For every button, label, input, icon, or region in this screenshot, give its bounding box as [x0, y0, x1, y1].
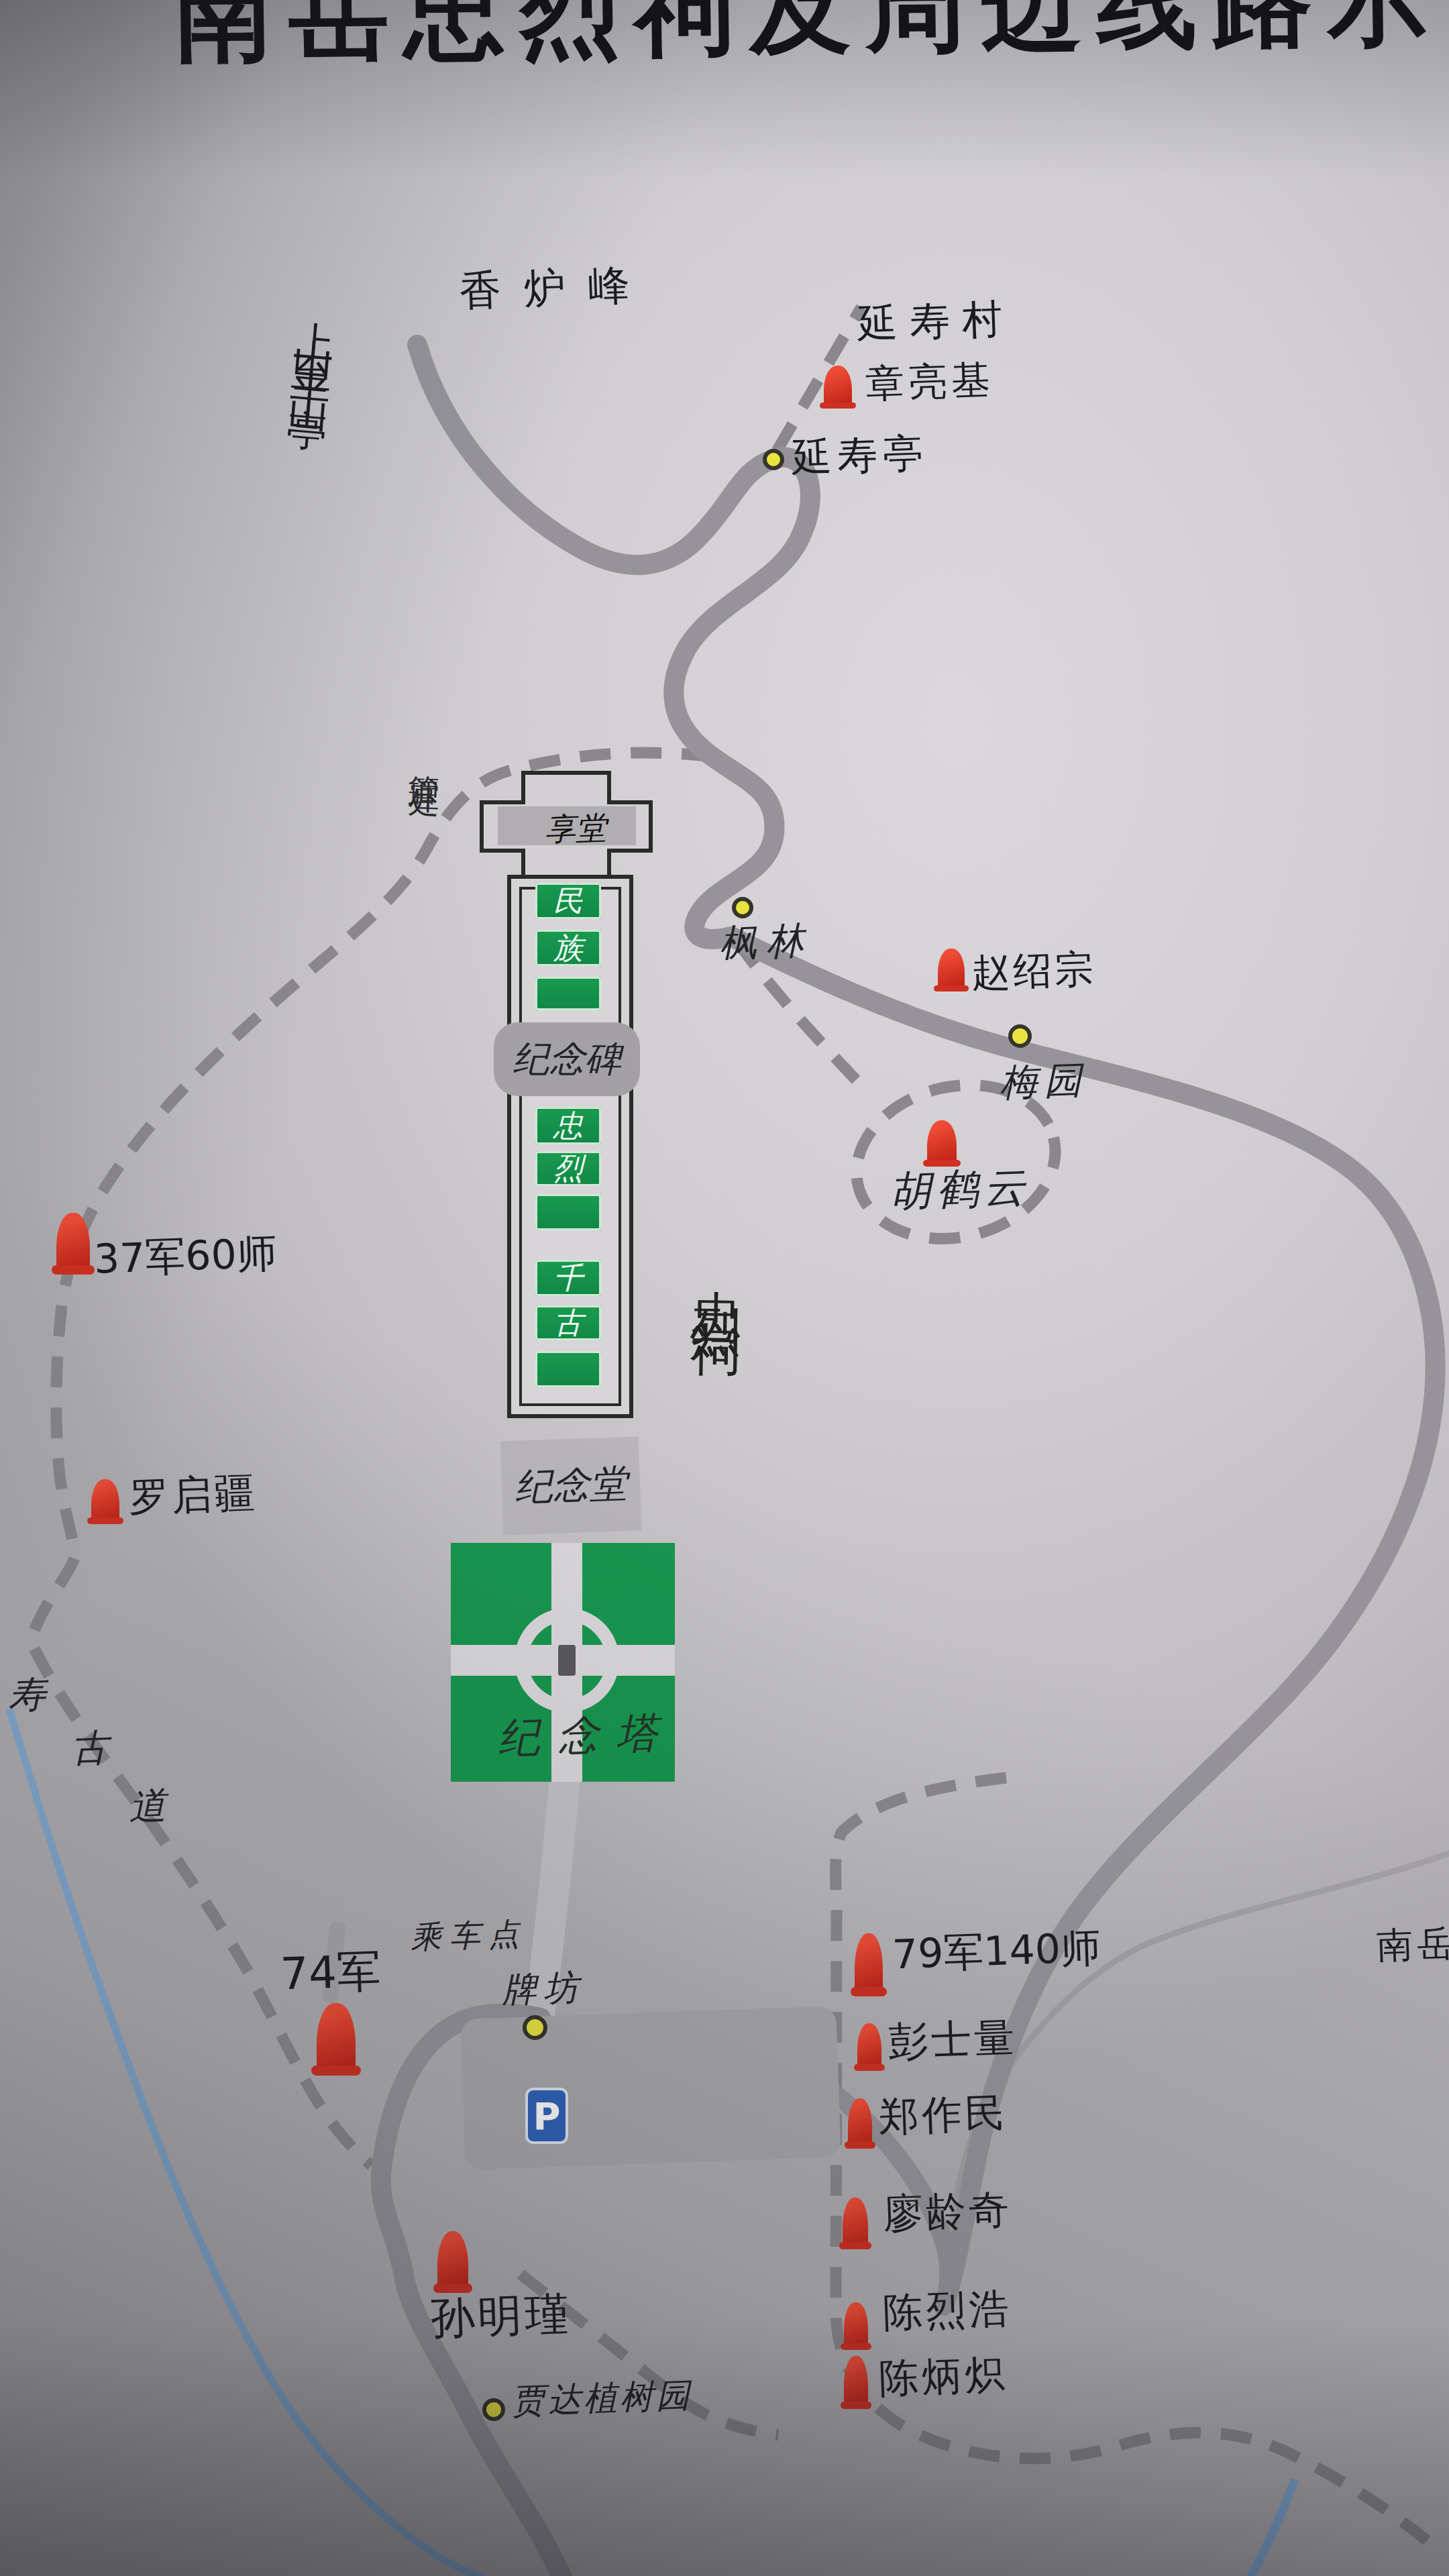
memorial-icon-chenliehao: [844, 2302, 868, 2348]
step-block-gu: 古: [535, 1305, 601, 1340]
memorial-icon-zhangliangji: [824, 366, 852, 407]
step-block-c: [535, 1351, 601, 1387]
memorial-icon-chenbingzhi: [844, 2356, 868, 2407]
map-photo: 南岳忠烈祠及周边线路示 民 族 忠 烈 千 古 纪念碑 享堂 纪念堂 纪念塔 P…: [0, 0, 1449, 2576]
step-block-b: [535, 1194, 601, 1230]
station-dot-paifang: [523, 2015, 547, 2040]
memorial-label-pengshiliang: 彭士量: [888, 2017, 1018, 2062]
memorial-label-chenbingzhi: 陈炳炽: [878, 2354, 1008, 2399]
parking-area: [460, 2006, 841, 2169]
stele-label: 纪念碑: [513, 1035, 621, 1084]
memorial-label-79jun140shi: 79军140师: [892, 1927, 1102, 1975]
village-label: 延寿村: [857, 298, 1015, 343]
stream-west: [9, 1709, 484, 2576]
map-title: 南岳忠烈祠及周边线路示: [172, 0, 1443, 66]
memorial-hall-label: 纪念堂: [514, 1458, 629, 1513]
memorial-icon-liaolingqi: [843, 2198, 868, 2247]
memorial-icon-74jun: [317, 2003, 356, 2073]
management-office-label: 管理处: [411, 751, 442, 768]
trail-southeast: [836, 1778, 1428, 2541]
memorial-label-zhangliangji: 章亮基: [865, 360, 995, 404]
xiangtang-label: 享堂: [544, 812, 607, 845]
memorial-icon-sunmingjin: [437, 2231, 468, 2290]
boarding-point-label: 乘车点: [410, 1918, 527, 1953]
memorial-label-zhaoshaozong: 赵绍宗: [971, 949, 1097, 992]
step-block-qian: 千: [535, 1260, 601, 1296]
stream-southeast: [1250, 2479, 1295, 2576]
memorial-label-sunmingjin: 孙明瑾: [430, 2292, 572, 2341]
memorial-icon-pengshiliang: [857, 2023, 881, 2069]
station-label-meiyuan: 梅园: [999, 1061, 1089, 1102]
tower-label: 纪念塔: [497, 1711, 676, 1759]
station-label-zhishuyuan: 贾达植树园: [511, 2378, 693, 2418]
station-dot-yanshouting: [763, 449, 784, 470]
station-label-fenglin: 枫林: [718, 922, 814, 963]
ancient-trail-char-3: 道: [128, 1786, 167, 1825]
shrine-name-label: 忠烈祠: [692, 1248, 743, 1301]
station-dot-zhishuyuan: [482, 2398, 505, 2421]
uphill-trail-label: 上山至半山亭: [290, 288, 339, 396]
ancient-trail-char-2: 古: [70, 1729, 109, 1768]
parking-sign: P: [525, 2088, 568, 2144]
memorial-label-chenliehao: 陈烈浩: [882, 2288, 1012, 2333]
memorial-label-74jun: 74军: [280, 1949, 382, 1996]
memorial-label-luoqijiang: 罗启疆: [128, 1472, 258, 1517]
peak-label: 香炉峰: [459, 264, 653, 312]
region-edge-label: 南岳: [1376, 1925, 1449, 1964]
memorial-label-liaolingqi: 廖龄奇: [882, 2189, 1012, 2234]
step-block-min: 民: [535, 883, 601, 919]
step-block-a: [535, 977, 601, 1010]
memorial-icon-zhengzuomin: [848, 2098, 872, 2147]
memorial-label-37jun60shi: 37军60师: [93, 1232, 278, 1279]
tower-icon: [558, 1645, 576, 1676]
memorial-icon-79jun140shi: [855, 1933, 883, 1994]
memorial-icon-luoqijiang: [91, 1479, 119, 1522]
memorial-icon-zhaoshaozong: [938, 949, 965, 990]
memorial-hall: 纪念堂: [500, 1436, 642, 1535]
memorial-icon-huheyun: [927, 1120, 957, 1165]
station-dot-meiyuan: [1008, 1024, 1032, 1048]
step-block-lie: 烈: [535, 1151, 601, 1186]
parking-sign-letter: P: [533, 2094, 560, 2138]
stele-platform: 纪念碑: [494, 1022, 640, 1096]
memorial-icon-37jun60shi: [56, 1213, 90, 1272]
memorial-label-huheyun: 胡鹤云: [889, 1166, 1031, 1212]
station-dot-fenglin: [732, 897, 753, 918]
station-label-yanshouting: 延寿亭: [791, 432, 929, 477]
path-nanyue: [943, 1853, 1449, 2304]
step-block-zu: 族: [535, 930, 601, 966]
memorial-label-zhengzuomin: 郑作民: [878, 2092, 1008, 2137]
ancient-trail-char-1: 寿: [7, 1675, 46, 1714]
station-label-paifang: 牌坊: [501, 1970, 586, 2007]
step-block-zhong: 忠: [535, 1107, 601, 1144]
